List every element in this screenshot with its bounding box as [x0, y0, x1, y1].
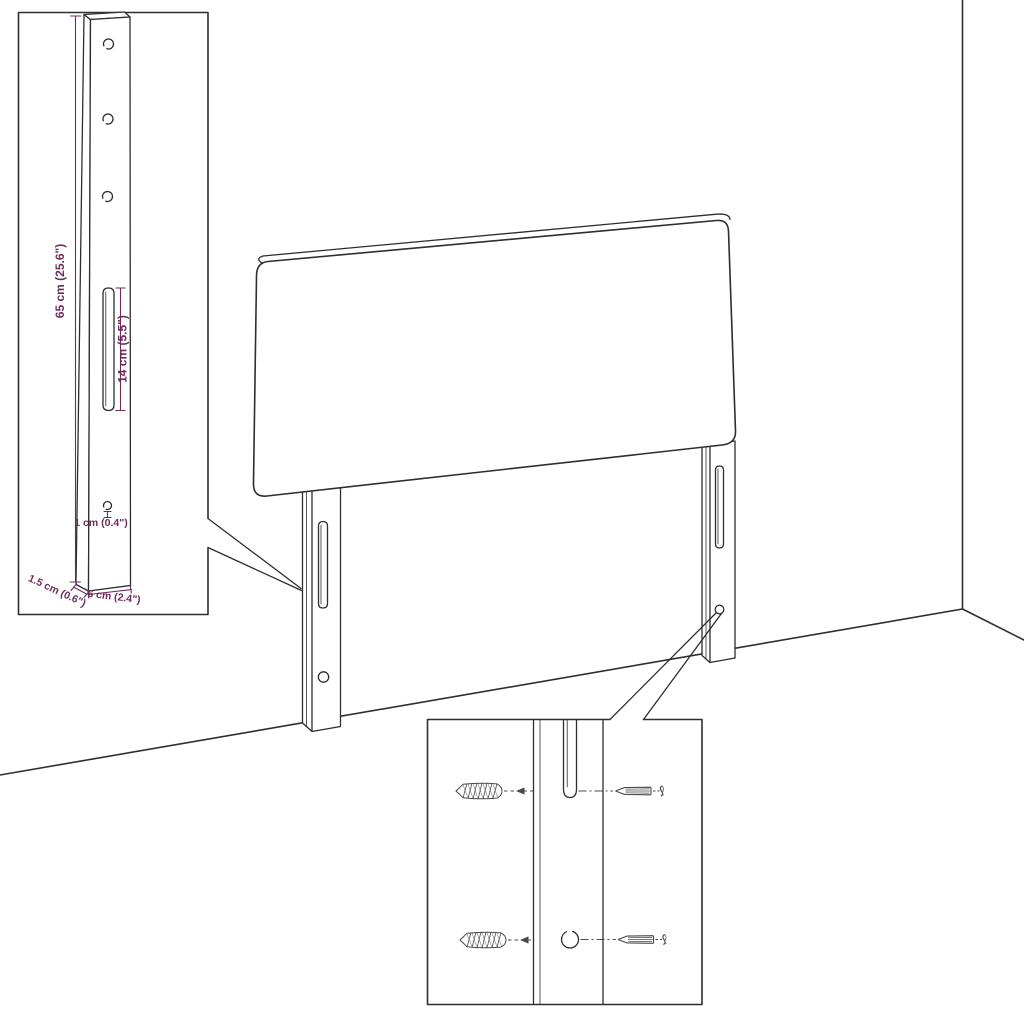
assembly-diagram: 65 cm (25.6") 14 cm (5.5") 1 cm (0.4") 1…: [0, 0, 1024, 1024]
inset-leg-bracket: [76, 12, 131, 591]
dimension-label-slot: 14 cm (5.5"): [116, 315, 130, 383]
detail-inset-leg-dimensions: 65 cm (25.6") 14 cm (5.5") 1 cm (0.4") 1…: [19, 12, 209, 615]
diagram-svg: 65 cm (25.6") 14 cm (5.5") 1 cm (0.4") 1…: [0, 0, 1024, 1024]
headboard-front-face: [253, 220, 735, 496]
inset-fixing-frame: [428, 720, 703, 1005]
callout-line-right-upper: [610, 613, 717, 720]
headboard-panel: [253, 214, 735, 496]
detail-inset-wall-fixing: [428, 720, 703, 1005]
right-leg-body: [702, 441, 735, 663]
bracket-front-face: [89, 17, 131, 591]
headboard-leg-right: [702, 441, 735, 663]
callout-line-right-lower: [644, 614, 722, 720]
floor-line-right: [963, 609, 1024, 640]
left-leg-body: [303, 487, 341, 732]
headboard-leg-left: [303, 487, 341, 732]
left-leg-hole: [318, 672, 328, 682]
dimension-label-height: 65 cm (25.6"): [53, 244, 67, 318]
dimension-label-hole: 1 cm (0.4"): [74, 517, 127, 529]
callout-wedge-left: [208, 519, 302, 591]
